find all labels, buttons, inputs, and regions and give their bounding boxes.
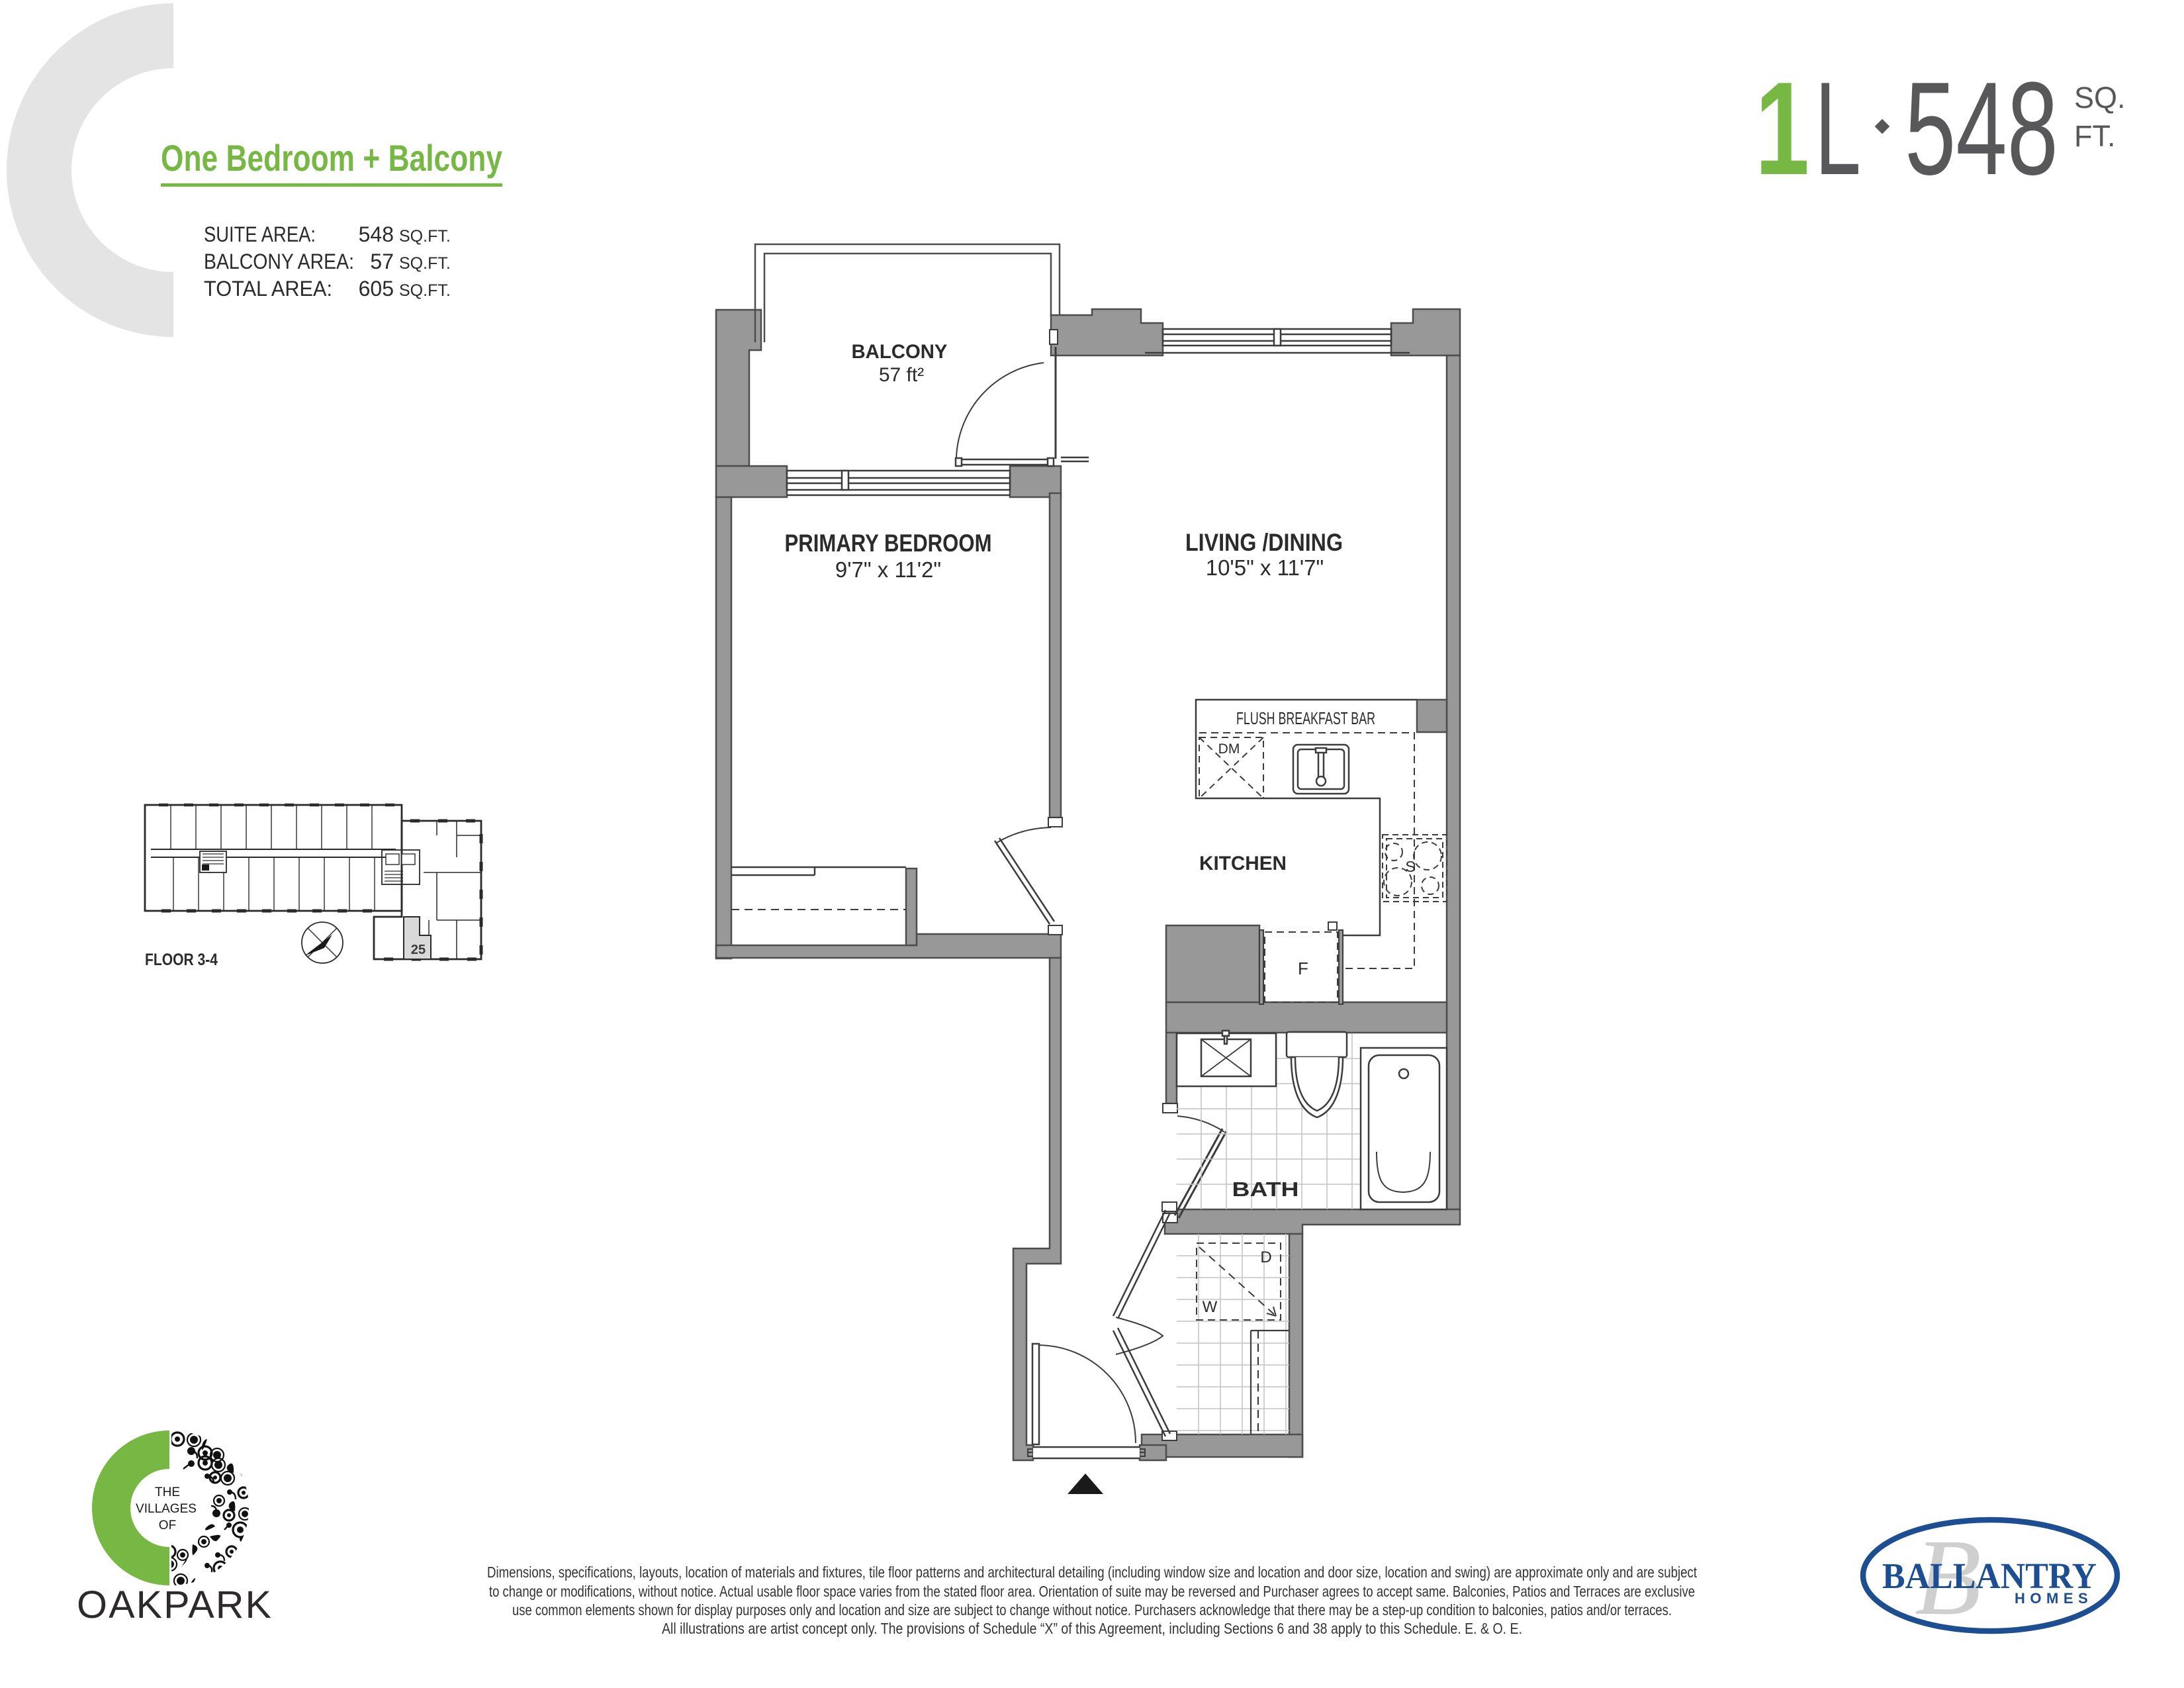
svg-text:SQ.FT.: SQ.FT.: [399, 254, 451, 273]
svg-text:D: D: [1260, 1248, 1271, 1266]
svg-text:10'5" x 11'7": 10'5" x 11'7": [1206, 555, 1324, 580]
svg-text:FLOOR 3-4: FLOOR 3-4: [145, 951, 218, 969]
svg-text:1: 1: [1755, 55, 1809, 203]
svg-text:BALCONY AREA:: BALCONY AREA:: [204, 250, 354, 273]
svg-text:FLUSH BREAKFAST BAR: FLUSH BREAKFAST BAR: [1236, 708, 1375, 728]
svg-text:to change or modifications, wi: to change or modifications, without noti…: [489, 1583, 1695, 1600]
svg-text:F: F: [1298, 959, 1308, 978]
svg-text:DM: DM: [1218, 741, 1240, 757]
svg-text:SQ.FT.: SQ.FT.: [399, 281, 451, 300]
svg-text:SUITE AREA:: SUITE AREA:: [204, 222, 316, 246]
svg-text:57: 57: [370, 250, 394, 273]
svg-text:All illustrations are artist c: All illustrations are artist concept onl…: [662, 1620, 1522, 1637]
svg-text:HOMES: HOMES: [2015, 1590, 2093, 1607]
svg-text:SQ.: SQ.: [2074, 81, 2126, 115]
svg-text:VILLAGES: VILLAGES: [136, 1502, 197, 1516]
svg-text:605: 605: [359, 277, 394, 301]
svg-text:BALCONY: BALCONY: [852, 341, 948, 363]
svg-text:One Bedroom + Balcony: One Bedroom + Balcony: [161, 137, 502, 179]
svg-text:TOTAL AREA:: TOTAL AREA:: [204, 277, 332, 301]
svg-text:548: 548: [359, 222, 394, 246]
svg-text:THE: THE: [155, 1485, 180, 1499]
svg-text:OF: OF: [159, 1519, 176, 1532]
svg-text:L: L: [1815, 55, 1861, 203]
svg-text:use common elements shown for: use common elements shown for display pu…: [512, 1601, 1672, 1618]
svg-text:KITCHEN: KITCHEN: [1199, 853, 1287, 874]
svg-text:W: W: [1203, 1298, 1218, 1316]
svg-text:LIVING /DINING: LIVING /DINING: [1185, 529, 1343, 556]
svg-text:9'7" x 11'2": 9'7" x 11'2": [835, 557, 941, 582]
svg-text:57 ft²: 57 ft²: [879, 364, 924, 386]
svg-text:PRIMARY BEDROOM: PRIMARY BEDROOM: [785, 530, 992, 557]
svg-text:25: 25: [411, 943, 426, 957]
svg-text:FT.: FT.: [2074, 119, 2116, 153]
svg-text:BATH: BATH: [1232, 1178, 1299, 1201]
svg-text:548: 548: [1905, 55, 2058, 203]
svg-text:SQ.FT.: SQ.FT.: [399, 227, 451, 246]
svg-text:OAKPARK: OAKPARK: [77, 1583, 273, 1626]
svg-text:Dimensions, specifications, la: Dimensions, specifications, layouts, loc…: [487, 1564, 1697, 1581]
svg-text:S: S: [1405, 858, 1415, 875]
